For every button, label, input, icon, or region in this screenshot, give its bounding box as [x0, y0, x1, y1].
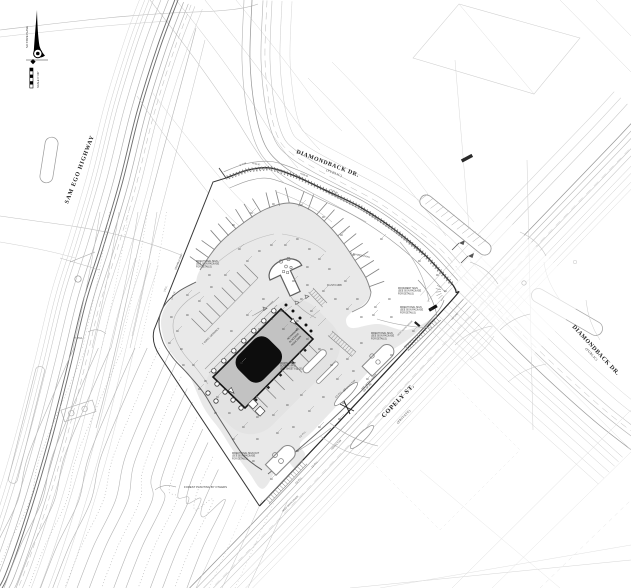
- svg-text:FOR DETAILS): FOR DETAILS): [400, 311, 416, 314]
- svg-text:(SEE SIGN PACKAGE: (SEE SIGN PACKAGE: [371, 335, 395, 338]
- svg-text:SCREEN WALL: SCREEN WALL: [280, 365, 297, 368]
- svg-text:FLUSH CURB: FLUSH CURB: [327, 285, 342, 287]
- svg-text:SCALE 1"=30': SCALE 1"=30': [36, 71, 40, 88]
- svg-text:(SEE SIGN PACKAGE: (SEE SIGN PACKAGE: [400, 309, 424, 312]
- svg-text:(SEE SIGN PACKAGE: (SEE SIGN PACKAGE: [232, 455, 256, 458]
- svg-text:(SEE SIGN PACKAGE: (SEE SIGN PACKAGE: [196, 263, 220, 266]
- svg-text:NO STATE PLANE: NO STATE PLANE: [25, 26, 29, 48]
- svg-text:MONUMENT SIGN: MONUMENT SIGN: [398, 288, 418, 290]
- svg-text:FOR DETAILS): FOR DETAILS): [232, 457, 248, 460]
- svg-text:DIRECTIONAL SIGN: DIRECTIONAL SIGN: [196, 260, 218, 263]
- svg-text:(SEE SHEET 8 @ 20): (SEE SHEET 8 @ 20): [280, 368, 303, 370]
- svg-text:DIRECTIONAL SIGN OUT: DIRECTIONAL SIGN OUT: [232, 452, 260, 455]
- svg-text:(SEE SIGN PACKAGE: (SEE SIGN PACKAGE: [398, 290, 422, 293]
- svg-text:FOR DETAILS): FOR DETAILS): [398, 292, 414, 295]
- svg-text:DIRECTIONAL SIGN: DIRECTIONAL SIGN: [371, 332, 393, 335]
- svg-text:DIRECTIONAL SIGN: DIRECTIONAL SIGN: [400, 306, 422, 309]
- svg-text:FOR DETAILS): FOR DETAILS): [371, 337, 387, 340]
- svg-text:FOR DETAILS): FOR DETAILS): [196, 265, 212, 268]
- svg-text:FOREST PLANTING BY OTHERS: FOREST PLANTING BY OTHERS: [184, 485, 227, 489]
- svg-text:WASTE EQUIP: WASTE EQUIP: [280, 362, 296, 365]
